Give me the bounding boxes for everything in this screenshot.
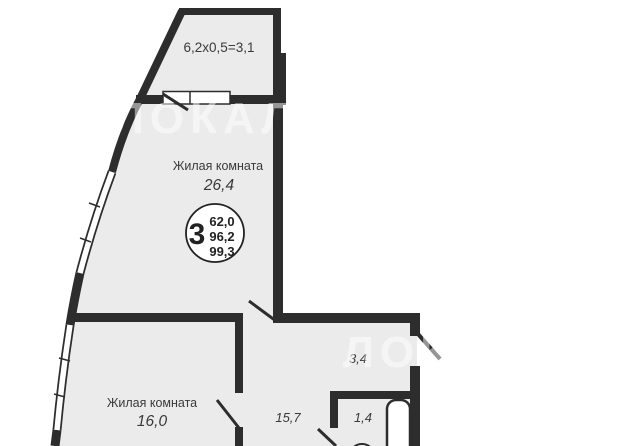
floor-plan: 3 62,0 96,2 99,3 6,2x0,5=3,1 Жилая комна… [0, 0, 632, 446]
wall [330, 399, 338, 428]
wall [410, 366, 420, 446]
room-count-badge: 3 62,0 96,2 99,3 [186, 204, 244, 262]
badge-area-1: 62,0 [209, 214, 234, 229]
wall [330, 391, 415, 399]
wall [273, 8, 281, 105]
floor-plan-page: 3 62,0 96,2 99,3 6,2x0,5=3,1 Жилая комна… [0, 0, 632, 446]
living-room-1-name: Жилая комната [173, 159, 263, 173]
balcony-dimensions-label: 6,2x0,5=3,1 [184, 40, 255, 55]
wall [273, 313, 420, 323]
bathroom-area-label: 1,4 [354, 410, 372, 425]
wall [75, 313, 243, 322]
wall [235, 322, 243, 393]
living-room-2-area: 16,0 [137, 413, 168, 430]
wall [235, 427, 243, 446]
badge-area-3: 99,3 [209, 244, 234, 259]
living-room-1-area: 26,4 [203, 177, 235, 194]
bathtub-icon [387, 400, 410, 446]
wall [179, 8, 281, 15]
curved-wall [55, 430, 57, 446]
badge-room-count: 3 [189, 218, 206, 251]
badge-area-2: 96,2 [209, 229, 234, 244]
watermark-text-top: ЛОКАЛС [113, 94, 336, 143]
living-room-2-name: Жилая комната [107, 396, 197, 410]
hallway-area-label: 15,7 [275, 410, 301, 425]
watermark-text-bottom: ЛОКАЛС [343, 328, 566, 377]
